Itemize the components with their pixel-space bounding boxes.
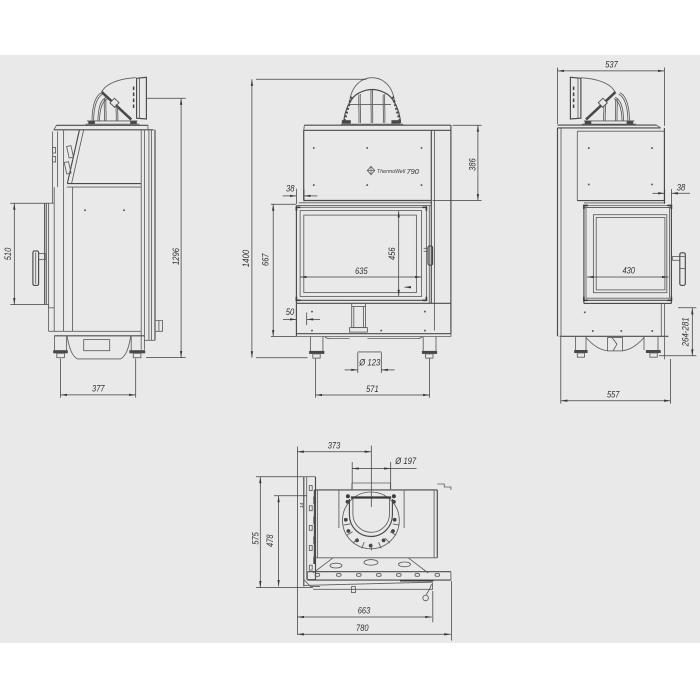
svg-text:377: 377 [92,384,105,395]
svg-text:386: 386 [467,158,478,171]
svg-text:Ø 123: Ø 123 [358,357,380,368]
svg-text:Ø 197: Ø 197 [394,456,416,467]
svg-text:38: 38 [286,183,295,194]
svg-text:575: 575 [250,532,261,545]
svg-text:635: 635 [355,266,368,277]
svg-text:663: 663 [358,606,371,617]
svg-text:1296: 1296 [171,247,182,265]
svg-text:557: 557 [607,390,620,401]
svg-text:1400: 1400 [241,249,252,267]
svg-text:264-281: 264-281 [680,317,691,347]
svg-text:50: 50 [286,307,295,318]
svg-text:537: 537 [605,60,618,71]
svg-text:478: 478 [265,534,276,547]
svg-text:430: 430 [622,265,635,276]
svg-text:456: 456 [387,247,398,260]
svg-text:373: 373 [328,440,341,451]
svg-text:571: 571 [366,384,379,395]
svg-text:780: 780 [356,623,369,634]
svg-text:38: 38 [677,182,686,193]
svg-text:667: 667 [260,253,271,266]
svg-text:790: 790 [407,167,420,176]
svg-text:14: 14 [299,503,305,509]
svg-text:510: 510 [3,247,14,260]
svg-text:ThermoWell: ThermoWell [377,169,406,175]
